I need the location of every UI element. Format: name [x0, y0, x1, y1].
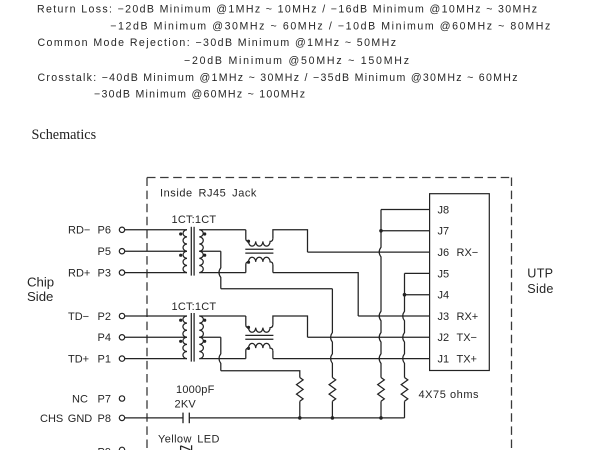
svg-text:J4: J4	[438, 290, 450, 302]
svg-text:−20dB Minimum @50MHz ~ 150MHz: −20dB Minimum @50MHz ~ 150MHz	[184, 55, 409, 67]
svg-text:1000pF: 1000pF	[176, 384, 215, 396]
svg-text:J1: J1	[438, 354, 450, 366]
svg-text:P2: P2	[98, 311, 111, 323]
svg-text:P5: P5	[98, 246, 111, 258]
svg-text:TD+: TD+	[68, 354, 89, 366]
svg-text:J5: J5	[438, 268, 450, 280]
svg-text:J7: J7	[438, 226, 450, 238]
svg-text:UTP: UTP	[527, 267, 553, 281]
svg-text:P4: P4	[98, 332, 111, 344]
svg-text:J3: J3	[438, 311, 450, 323]
svg-text:Return Loss: −20dB Minimum @1M: Return Loss: −20dB Minimum @1MHz ~ 10MHz…	[37, 3, 537, 15]
svg-text:RX−: RX−	[457, 247, 479, 259]
svg-text:Side: Side	[527, 282, 553, 296]
svg-text:J6: J6	[438, 247, 450, 259]
svg-text:J2: J2	[438, 332, 450, 344]
svg-text:J8: J8	[438, 204, 450, 216]
svg-text:P3: P3	[98, 268, 111, 280]
svg-text:Crosstalk: −40dB Minimum @1MHz: Crosstalk: −40dB Minimum @1MHz ~ 30MHz /…	[38, 72, 518, 84]
svg-text:4X75 ohms: 4X75 ohms	[419, 389, 480, 401]
svg-text:Common Mode Rejection: −30dB M: Common Mode Rejection: −30dB Minimum @1M…	[38, 37, 396, 49]
svg-text:P8: P8	[98, 413, 111, 425]
svg-text:RD−: RD−	[68, 225, 90, 237]
svg-text:2KV: 2KV	[175, 399, 197, 411]
svg-text:P1: P1	[98, 354, 111, 366]
svg-text:TX+: TX+	[457, 354, 477, 366]
svg-text:RD+: RD+	[68, 268, 90, 280]
svg-text:TD−: TD−	[68, 311, 89, 323]
svg-text:TX−: TX−	[457, 332, 477, 344]
svg-text:P6: P6	[98, 225, 111, 237]
svg-text:Chip: Chip	[27, 274, 54, 289]
svg-text:P9: P9	[98, 446, 111, 450]
svg-text:CHS GND: CHS GND	[40, 413, 92, 425]
svg-text:Inside RJ45 Jack: Inside RJ45 Jack	[160, 188, 257, 200]
svg-text:Yellow LED: Yellow LED	[158, 433, 220, 445]
svg-text:Side: Side	[27, 289, 53, 304]
svg-text:Schematics: Schematics	[32, 127, 97, 143]
svg-text:RX+: RX+	[457, 311, 479, 323]
svg-text:−12dB Minimum @30MHz ~ 60MHz /: −12dB Minimum @30MHz ~ 60MHz / −10dB Min…	[110, 21, 550, 33]
svg-text:−30dB Minimum @60MHz ~ 100MHz: −30dB Minimum @60MHz ~ 100MHz	[94, 88, 305, 100]
svg-text:1CT:1CT: 1CT:1CT	[172, 214, 217, 226]
svg-text:P7: P7	[98, 393, 111, 405]
svg-text:NC: NC	[72, 393, 88, 405]
svg-text:1CT:1CT: 1CT:1CT	[172, 301, 217, 313]
